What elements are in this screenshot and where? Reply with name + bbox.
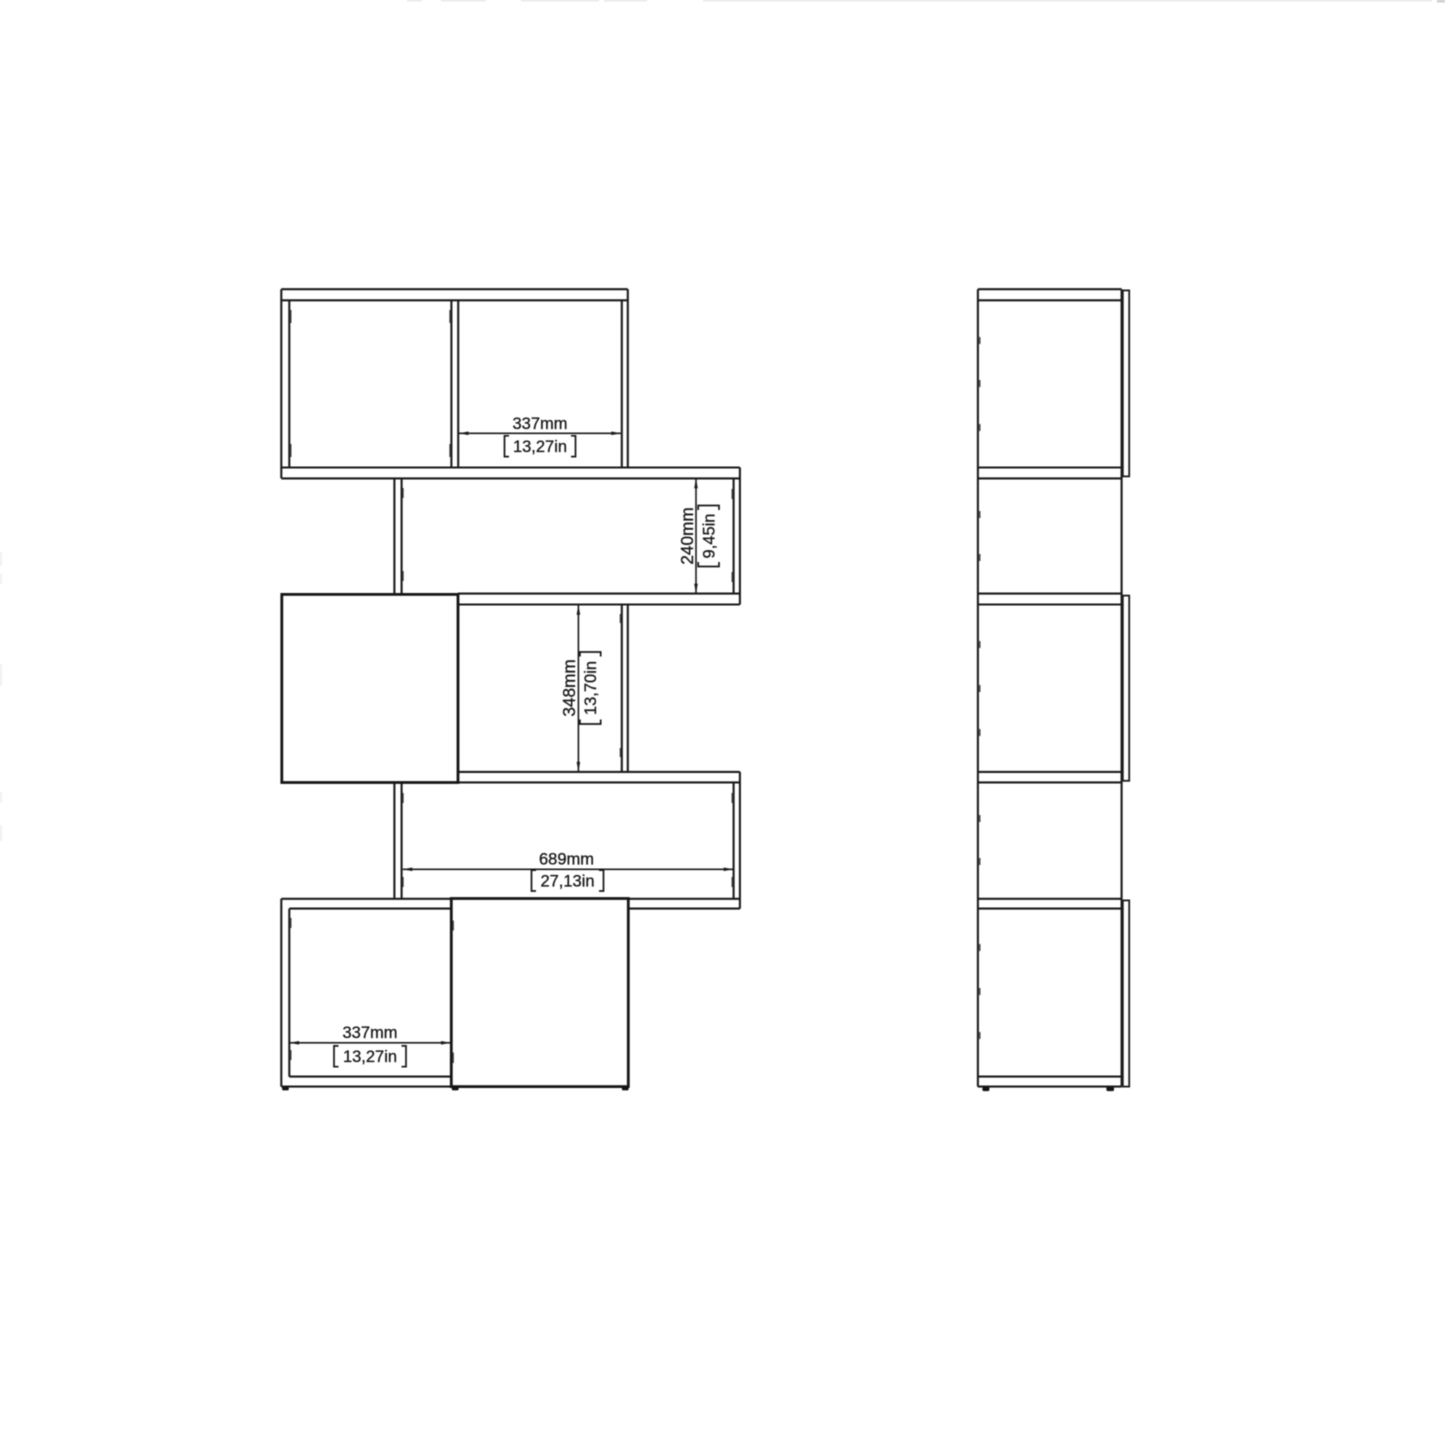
svg-text:13,70in: 13,70in	[582, 661, 600, 715]
svg-text:689mm: 689mm	[539, 851, 594, 869]
svg-text:13,27in: 13,27in	[513, 438, 567, 456]
svg-text:9,45in: 9,45in	[700, 514, 718, 559]
svg-text:27,13in: 27,13in	[540, 872, 594, 890]
svg-text:348mm: 348mm	[559, 659, 579, 716]
svg-text:337mm: 337mm	[342, 1024, 397, 1042]
svg-text:337mm: 337mm	[512, 415, 567, 433]
svg-text:13,27in: 13,27in	[343, 1048, 397, 1066]
svg-text:240mm: 240mm	[677, 507, 697, 564]
